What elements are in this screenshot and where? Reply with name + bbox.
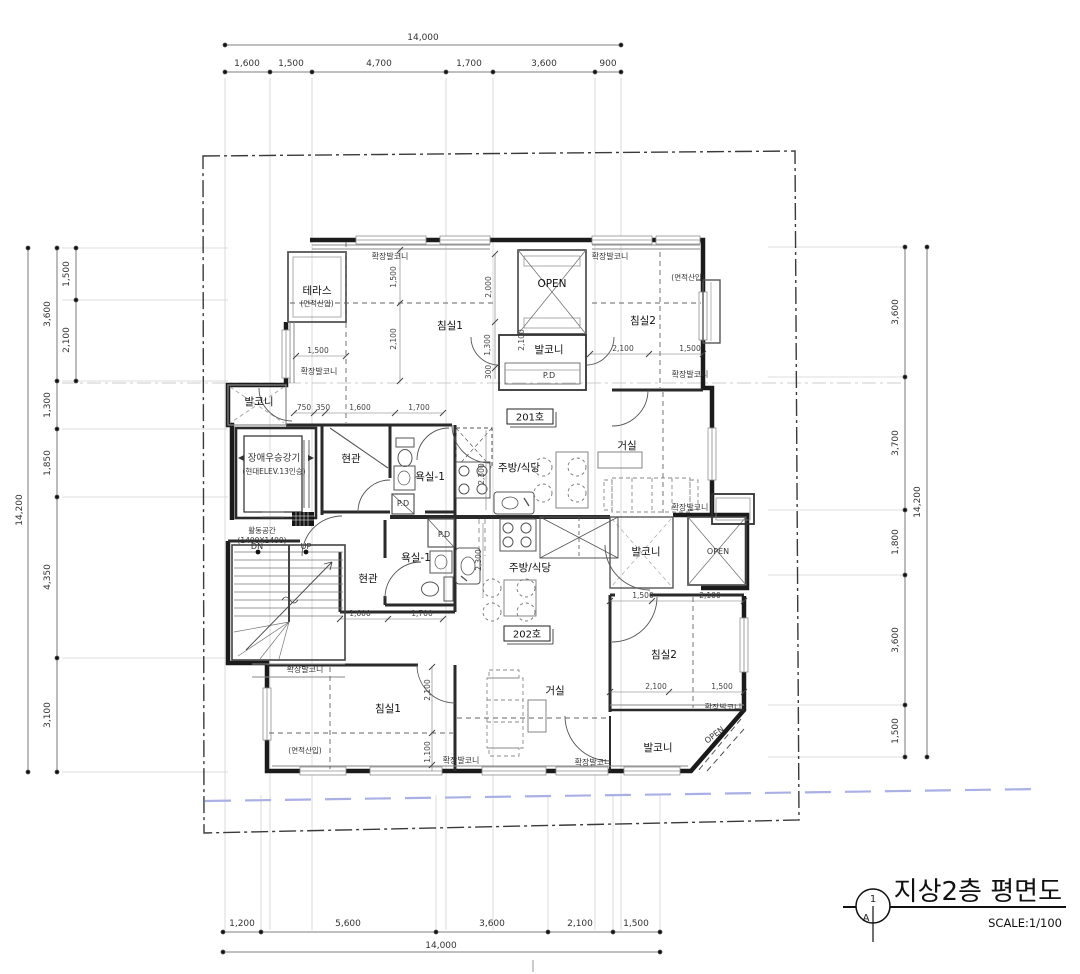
plan-dim: 1,500 (632, 591, 654, 600)
ext-balcony-stair: 확장발코니 (287, 664, 324, 674)
floor-plan-drawing: 테라스 (면적산입) 확장발코니 침실1 확장발코니 (면적산입) OPEN 침… (0, 0, 1080, 974)
dim-top-seg: 4,700 (366, 59, 392, 69)
entry-201-label: 현관 (341, 453, 361, 465)
balcony-202-label: 발코니 (644, 742, 673, 754)
plan-dim: 1,500 (389, 266, 398, 288)
dining-set-202 (483, 579, 536, 621)
area-note-202: (면적산입) (288, 745, 322, 755)
bath-201-label: 욕실-1 (415, 471, 445, 483)
plan-dim: 1,700 (411, 609, 433, 618)
plan-dim: 2,100 (645, 682, 667, 691)
dim-top-total: 14,000 (407, 33, 439, 43)
grid-lines (62, 78, 903, 972)
kitchen-201-label: 주방/식당 (498, 462, 541, 474)
ext-balcony-living-202: 확장발코니 (575, 757, 612, 767)
plan-dim: 1,500 (711, 682, 733, 691)
kitchen-center-shaft (540, 517, 618, 558)
ext-balcony-201-left: 확장발코니 (301, 366, 338, 376)
plan-dim: 1,500 (679, 344, 701, 353)
ext-balcony-201-top-right: 확장발코니 (592, 251, 629, 261)
dim-left-seg: 3,600 (43, 301, 53, 327)
unit-tag-202: 202호 (513, 629, 541, 641)
dim-left-seg: 3,100 (43, 702, 53, 728)
plan-dim: 750 (297, 403, 312, 412)
ext-balcony-201-living: 확장발코니 (672, 502, 709, 512)
activity-label: 활동공간 (248, 525, 276, 535)
dim-right-seg: 1,800 (891, 529, 901, 555)
plan-dim: 2,100 (517, 329, 526, 351)
kitchen-202-label: 주방/식당 (509, 562, 552, 574)
plan-dim: 1,100 (423, 741, 432, 763)
open-shaft-top (518, 250, 586, 334)
setback-line (205, 789, 1040, 801)
sofa-202 (487, 670, 546, 756)
ext-balcony-bed2-202: 확장발코니 (705, 702, 742, 712)
ext-balcony-201-right: 확장발코니 (672, 369, 709, 379)
plan-dim: 350 (316, 403, 331, 412)
stair-up-label: UP (301, 542, 312, 551)
dimension-left: 14,200 3,600 1,300 1,850 4,350 3,100 1,5… (15, 246, 78, 774)
dining-set-201 (534, 452, 588, 508)
dimension-top: 14,000 1,600 1,500 4,700 1,700 3,600 900 (223, 33, 623, 74)
terrace-label: 테라스 (303, 285, 332, 297)
dim-bottom-seg: 5,600 (335, 919, 361, 929)
open-top-label: OPEN (537, 278, 566, 290)
dim-left-total: 14,200 (15, 494, 25, 526)
title-block: 1 A 지상2층 평면도 SCALE:1/100 (843, 877, 1066, 942)
plan-dim: 2,300 (474, 549, 483, 571)
door-swings (259, 337, 657, 761)
balcony-top-label: 발코니 (535, 344, 564, 356)
pd-201-label: P.D (397, 499, 409, 508)
dim-bottom-seg: 1,200 (229, 919, 255, 929)
sheet-letter: A (863, 913, 870, 924)
entry-202-label: 현관 (358, 573, 378, 585)
plan-dim: 2,100 (699, 591, 721, 600)
ext-balcony-bed1-202: 확장발코니 (443, 755, 480, 765)
bedroom2-202-label: 침실2 (651, 649, 677, 661)
elevator-note: (현대ELEV.13인승) (242, 466, 305, 476)
dim-right-total: 14,200 (913, 486, 923, 518)
activity-space-marker (292, 512, 314, 526)
plan-dim: 1,700 (408, 403, 430, 412)
balcony-201-right-label: 발코니 (632, 546, 661, 558)
dim-top-seg: 1,700 (456, 59, 482, 69)
living-201-label: 거실 (617, 440, 636, 452)
plan-dim: 1,500 (307, 346, 329, 355)
dim-top-seg: 900 (599, 59, 616, 69)
bath-202-label: 욕실-1 (401, 552, 431, 564)
dimension-right: 3,600 3,700 1,800 3,600 1,500 14,200 (891, 245, 929, 759)
dim-top-seg: 1,500 (278, 59, 304, 69)
dim-right-seg: 3,700 (891, 430, 901, 456)
terrace-note: (면적산입) (300, 298, 334, 308)
pd-top-label: P.D (543, 371, 555, 380)
living-202-label: 거실 (545, 685, 564, 697)
plan-dim: 2,300 (477, 463, 486, 485)
ext-balcony-201-top-left: 확장발코니 (372, 251, 409, 261)
plan-dim: 2,100 (423, 679, 432, 701)
pd-202-label: P.D (438, 530, 450, 539)
dim-bottom-total: 14,000 (425, 941, 457, 951)
dim-bottom-seg: 3,600 (479, 919, 505, 929)
drawing-title: 지상2층 평면도 (894, 877, 1062, 907)
dimension-bottom: 1,200 5,600 3,600 2,100 1,500 14,000 (221, 919, 662, 954)
dim-bottom-seg: 1,500 (623, 919, 649, 929)
plan-dim: 2,100 (389, 328, 398, 350)
plan-dim: 1,600 (349, 609, 371, 618)
plan-dim: 300 (484, 365, 493, 380)
plan-dim: 2,100 (612, 344, 634, 353)
balcony-left-label: 발코니 (245, 396, 274, 408)
stair-down-label: DN (251, 542, 263, 551)
dim-left-inner: 1,500 (62, 261, 72, 287)
stairs (232, 545, 345, 660)
floor-plan-sheet: 테라스 (면적산입) 확장발코니 침실1 확장발코니 (면적산입) OPEN 침… (0, 0, 1080, 974)
detail-number: 1 (870, 894, 876, 905)
bedroom2-201-label: 침실2 (630, 315, 656, 327)
dim-top-seg: 1,600 (234, 59, 260, 69)
dim-left-seg: 4,350 (43, 564, 53, 590)
unit-tag-201: 201호 (516, 412, 544, 424)
dim-right-seg: 3,600 (891, 627, 901, 653)
dim-left-inner: 2,100 (62, 327, 72, 353)
dim-left-seg: 1,300 (43, 392, 53, 418)
elevator-label: 장애우승강기 (248, 453, 300, 464)
area-note-201: (면적산입) (671, 272, 705, 282)
plan-dim: 1,300 (483, 334, 492, 356)
drawing-scale: SCALE:1/100 (988, 916, 1062, 930)
plan-dim: 1,600 (349, 403, 371, 412)
bedroom1-201-label: 침실1 (437, 320, 463, 332)
dim-right-seg: 1,500 (891, 718, 901, 744)
dim-left-seg: 1,850 (43, 450, 53, 476)
open-right-label: OPEN (707, 547, 729, 556)
dim-bottom-seg: 2,100 (567, 919, 593, 929)
bedroom1-202-label: 침실1 (375, 703, 401, 715)
dim-top-seg: 3,600 (531, 59, 557, 69)
plan-dim: 2,000 (484, 276, 493, 298)
kitchen-202 (456, 519, 536, 584)
dim-right-seg: 3,600 (891, 299, 901, 325)
